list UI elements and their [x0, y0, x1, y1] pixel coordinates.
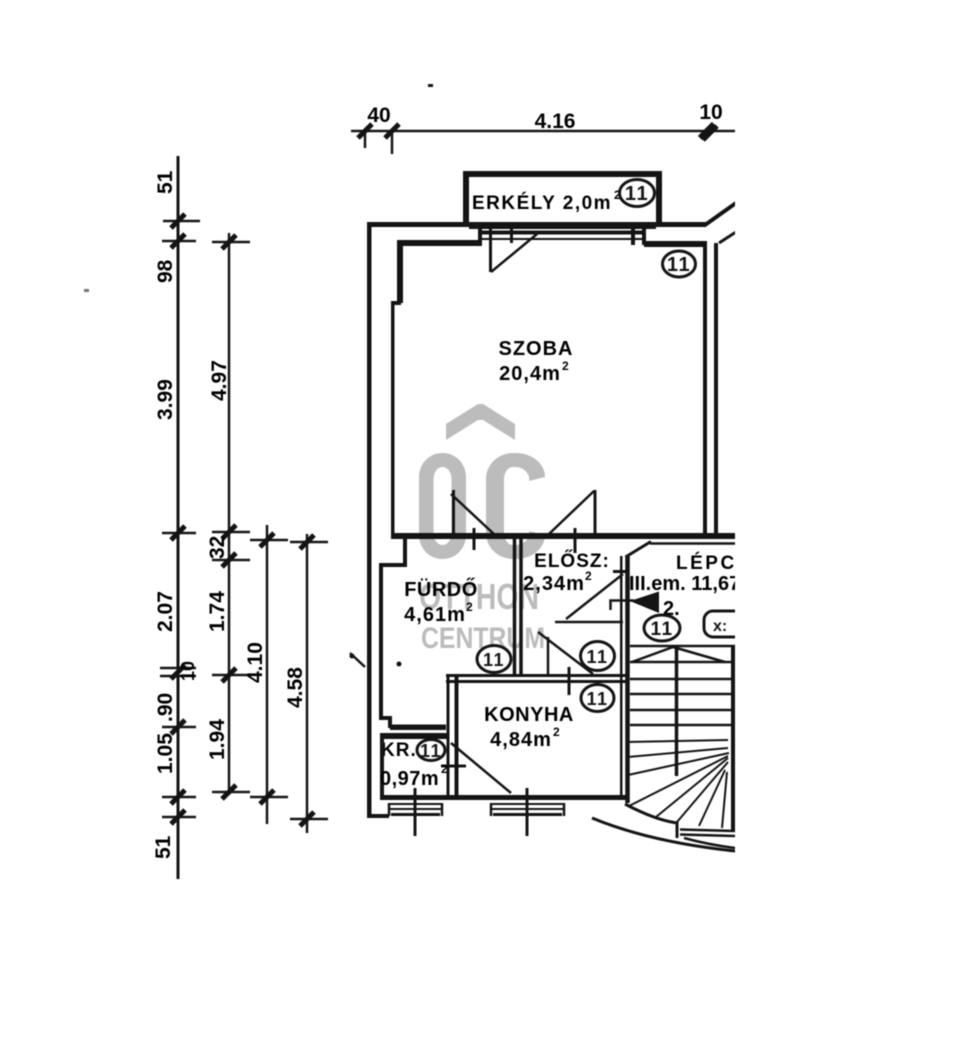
svg-text:11: 11 — [420, 741, 442, 761]
svg-text:4,61m: 4,61m — [404, 604, 466, 626]
svg-text:11: 11 — [586, 689, 608, 709]
svg-text:51: 51 — [154, 170, 177, 194]
svg-text:FÜRDŐ: FÜRDŐ — [404, 578, 478, 601]
svg-text:LÉPCSŐ: LÉPCSŐ — [676, 552, 769, 574]
svg-text:KONYHA: KONYHA — [484, 704, 574, 726]
svg-text:11: 11 — [586, 647, 608, 667]
svg-text:2,34m: 2,34m — [523, 573, 585, 595]
svg-text:3.99: 3.99 — [154, 379, 177, 420]
svg-text:1.05: 1.05 — [154, 733, 177, 774]
svg-text:4.10: 4.10 — [244, 642, 267, 683]
svg-text:KR.: KR. — [381, 740, 417, 761]
svg-text:2: 2 — [441, 762, 448, 776]
svg-text:x:: x: — [713, 618, 727, 635]
svg-text:11: 11 — [483, 650, 505, 670]
svg-text:ELŐSZ:: ELŐSZ: — [534, 550, 610, 572]
svg-text:2.07: 2.07 — [154, 591, 177, 632]
svg-text:4.58: 4.58 — [284, 667, 307, 708]
svg-text:11: 11 — [667, 254, 691, 276]
svg-text:SZOBA: SZOBA — [499, 338, 574, 360]
svg-text:20,4m: 20,4m — [499, 363, 561, 385]
svg-text:10: 10 — [699, 101, 722, 124]
svg-text:32: 32 — [206, 536, 229, 559]
svg-text:40: 40 — [367, 104, 390, 127]
svg-text:1.94: 1.94 — [206, 719, 229, 760]
svg-text:4.16: 4.16 — [535, 110, 576, 133]
svg-text:11: 11 — [625, 183, 649, 205]
svg-text:2: 2 — [585, 569, 592, 583]
svg-text:0,97m: 0,97m — [380, 768, 439, 790]
svg-text:1.74: 1.74 — [206, 591, 229, 632]
svg-text:2: 2 — [553, 725, 560, 739]
svg-text:2: 2 — [466, 600, 473, 614]
svg-text:2: 2 — [562, 359, 569, 373]
svg-text:98: 98 — [154, 259, 177, 283]
svg-text:11: 11 — [650, 619, 673, 640]
svg-text:4.97: 4.97 — [208, 360, 231, 401]
svg-text:ERKÉLY 2,0m: ERKÉLY 2,0m — [472, 192, 612, 214]
svg-text:4,84m: 4,84m — [490, 729, 552, 751]
svg-text:51: 51 — [152, 835, 175, 859]
svg-text:III.em. 11,67: III.em. 11,67 — [629, 573, 740, 595]
svg-text:.90: .90 — [154, 693, 177, 722]
svg-text:10: 10 — [178, 661, 198, 681]
